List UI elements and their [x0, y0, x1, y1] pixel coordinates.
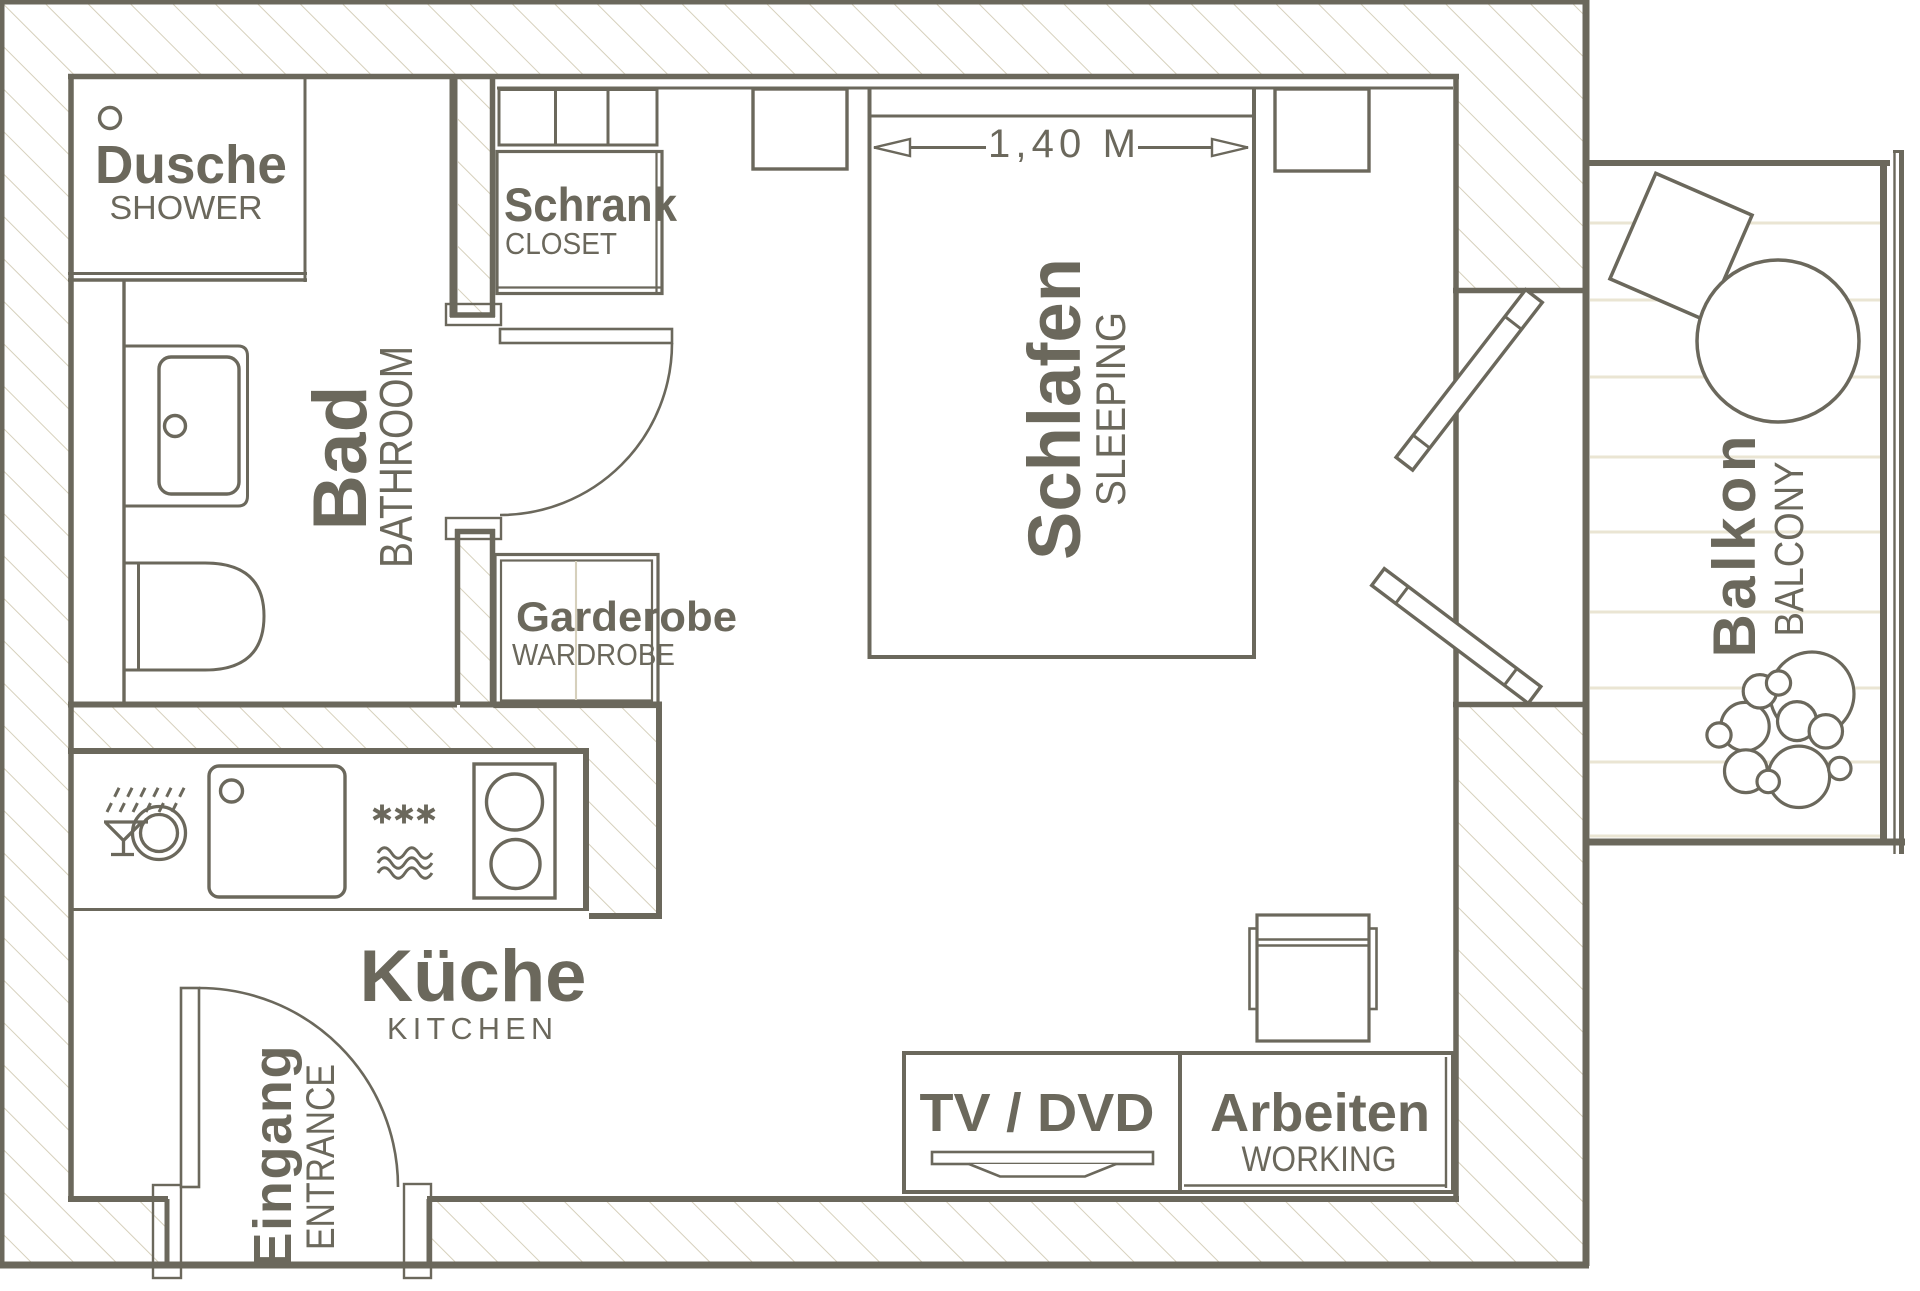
svg-text:WARDROBE: WARDROBE: [512, 638, 675, 672]
svg-text:BATHROOM: BATHROOM: [370, 346, 422, 568]
svg-text:SLEEPING: SLEEPING: [1087, 312, 1134, 506]
svg-text:Balkon: Balkon: [1701, 436, 1768, 658]
svg-text:ENTRANCE: ENTRANCE: [299, 1064, 343, 1250]
svg-text:Schrank: Schrank: [504, 178, 678, 231]
svg-text:WORKING: WORKING: [1242, 1140, 1397, 1179]
svg-text:Dusche: Dusche: [95, 135, 287, 195]
svg-text:TV / DVD: TV / DVD: [920, 1083, 1155, 1143]
svg-text:Schlafen: Schlafen: [1013, 258, 1096, 560]
svg-text:CLOSET: CLOSET: [505, 227, 617, 261]
svg-text:Küche: Küche: [360, 936, 587, 1017]
svg-text:1,40 M: 1,40 M: [988, 122, 1136, 166]
svg-text:BALCONY: BALCONY: [1766, 462, 1812, 637]
svg-text:SHOWER: SHOWER: [110, 190, 263, 227]
svg-text:Arbeiten: Arbeiten: [1210, 1083, 1430, 1143]
svg-text:Eingang: Eingang: [243, 1046, 303, 1269]
svg-text:Garderobe: Garderobe: [516, 593, 737, 640]
